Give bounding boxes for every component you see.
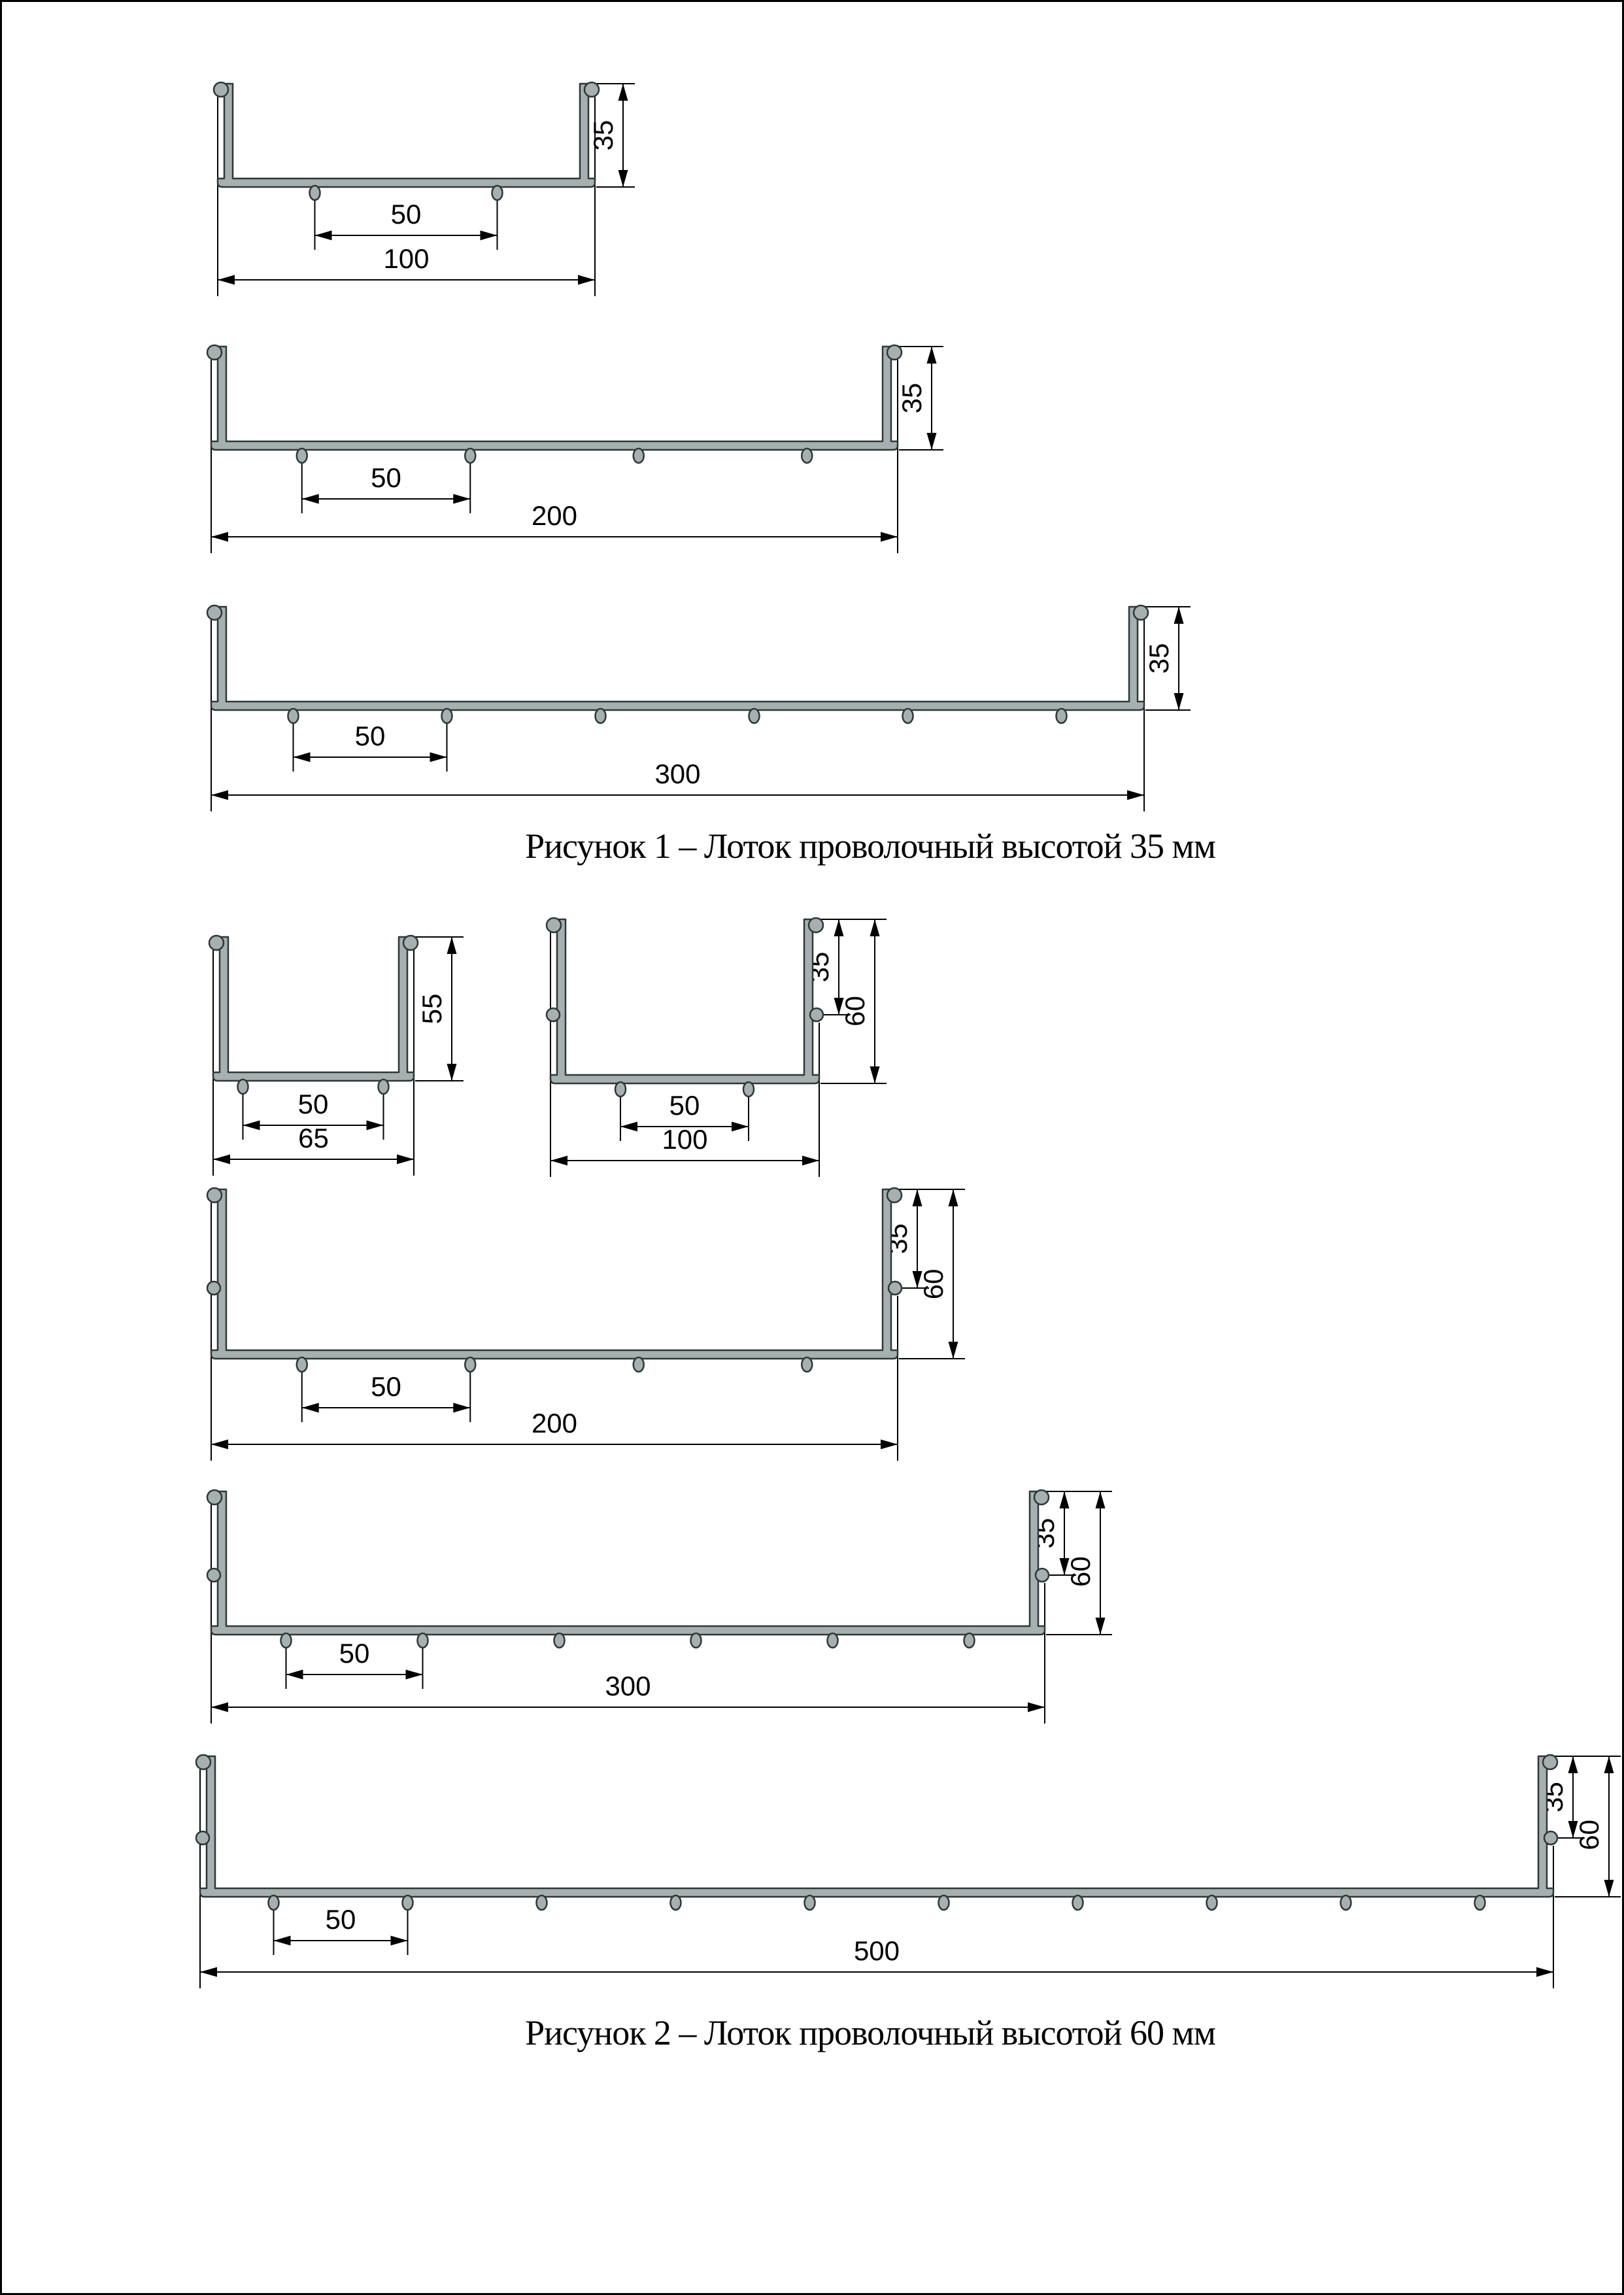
mid-wire-left — [207, 1282, 220, 1295]
tray-profile-300x35: 5030035 — [207, 605, 1191, 811]
bottom-wire — [805, 1895, 815, 1910]
mid-wire-right — [1544, 1831, 1557, 1844]
drawing-canvas: 5010035502003550300355065555010035605020… — [2, 2, 1624, 2295]
dimension-arrow — [211, 1703, 228, 1712]
dimension-arrow — [618, 170, 628, 187]
width-dim-label: 300 — [605, 1671, 651, 1701]
pitch-dim-label: 50 — [355, 721, 386, 751]
bottom-wire — [442, 709, 452, 723]
top-wire-left — [207, 345, 222, 360]
dimension-arrow — [550, 1156, 567, 1166]
dimension-arrow — [286, 1670, 303, 1680]
tray-profile-100x35: 5010035 — [214, 82, 635, 296]
dimension-arrow — [367, 1121, 384, 1130]
bottom-wire — [281, 1633, 292, 1648]
mid-wire-right — [1036, 1569, 1049, 1582]
top-wire-right — [887, 1188, 902, 1202]
width-dim-label: 65 — [298, 1123, 329, 1153]
dimension-arrow — [802, 1156, 819, 1166]
height-dim-label: 60 — [839, 996, 870, 1027]
dimension-arrow — [294, 753, 311, 762]
bottom-wire — [465, 449, 475, 463]
top-wire-right — [403, 936, 418, 950]
bottom-wire — [1341, 1895, 1351, 1910]
dimension-arrow — [1060, 1491, 1070, 1508]
dimension-arrow — [302, 1403, 319, 1413]
bottom-wire — [403, 1895, 413, 1910]
dimension-arrow — [1127, 790, 1144, 800]
dimension-arrow — [243, 1121, 260, 1130]
tray-profile-300x60: 503003560 — [207, 1490, 1112, 1724]
top-wire-right — [584, 82, 599, 97]
height-dim-label: 55 — [416, 994, 447, 1025]
bottom-wire — [288, 709, 299, 723]
dimension-arrow — [274, 1936, 291, 1946]
bottom-wire — [238, 1079, 248, 1094]
bottom-wire — [297, 449, 307, 463]
width-dim-label: 100 — [383, 243, 429, 274]
pitch-dim-label: 50 — [371, 462, 401, 493]
tray-profile-100x60: 501003560 — [547, 918, 887, 1177]
dimension-arrow — [949, 1189, 958, 1206]
dimension-arrow — [453, 1403, 470, 1413]
dimension-arrow — [732, 1122, 749, 1132]
bottom-wire — [1207, 1895, 1217, 1910]
bottom-wire — [379, 1079, 389, 1094]
bottom-wire — [802, 449, 812, 463]
height-dim-label: 60 — [1574, 1820, 1604, 1850]
pitch-dim-label: 50 — [326, 1904, 356, 1935]
width-dim-label: 300 — [654, 758, 700, 789]
bottom-wire — [1475, 1895, 1485, 1910]
bottom-wire — [615, 1082, 626, 1096]
top-wire-left — [196, 1755, 211, 1769]
tray-profile-200x35: 5020035 — [207, 345, 943, 553]
bottom-wire — [297, 1357, 307, 1372]
top-wire-right — [809, 918, 823, 932]
dimension-arrow — [881, 532, 898, 542]
top-wire-right — [887, 345, 902, 360]
width-dim-label: 200 — [532, 500, 577, 531]
bottom-wire — [749, 709, 760, 723]
dimension-arrow — [453, 494, 470, 504]
dimension-arrow — [881, 1440, 898, 1450]
dimension-arrow — [870, 919, 880, 936]
dimension-arrow — [406, 1670, 423, 1680]
dimension-arrow — [927, 433, 937, 450]
figure1-caption: Рисунок 1 – Лоток проволочный высотой 35… — [314, 826, 1426, 866]
tray-body — [211, 347, 898, 450]
bottom-wire — [634, 1357, 644, 1372]
dimension-arrow — [1604, 1880, 1614, 1897]
dimension-arrow — [618, 84, 628, 101]
height-dim-label: 35 — [896, 383, 927, 414]
dimension-arrow — [1568, 1756, 1578, 1773]
dimension-arrow — [1174, 693, 1184, 710]
bottom-wire — [1057, 709, 1067, 723]
dimension-arrow — [213, 1155, 230, 1164]
bottom-wire — [310, 186, 320, 200]
mid-wire-right — [810, 1008, 823, 1021]
dimensions: 502003560 — [211, 1189, 965, 1461]
dimension-arrow — [834, 919, 844, 936]
tray-profile-65x55: 506555 — [209, 936, 464, 1176]
bottom-wire — [418, 1633, 428, 1648]
bottom-wire — [802, 1357, 812, 1372]
height-dim-label: 35 — [1143, 643, 1174, 674]
dimensions: 501003560 — [550, 919, 887, 1177]
dimensions: 506555 — [213, 937, 464, 1176]
height-dim-label: 60 — [1065, 1556, 1096, 1587]
dimension-arrow — [1096, 1618, 1106, 1635]
dimension-arrow — [211, 790, 228, 800]
dimension-arrow — [620, 1122, 637, 1132]
dimensions: 5010035 — [218, 84, 635, 296]
bottom-wire — [492, 186, 503, 200]
top-wire-right — [1034, 1490, 1049, 1504]
tray-body — [550, 919, 819, 1083]
bottom-wire — [964, 1633, 975, 1648]
dimension-arrow — [481, 231, 498, 241]
dimension-arrow — [1536, 1967, 1553, 1977]
pitch-dim-label: 50 — [339, 1638, 370, 1669]
tray-body — [211, 1189, 898, 1359]
top-wire-left — [207, 605, 222, 620]
dimension-arrow — [913, 1189, 922, 1206]
dimension-arrow — [927, 347, 937, 364]
dimensions: 505003560 — [200, 1756, 1621, 1988]
tray-profile-200x60: 502003560 — [207, 1188, 965, 1461]
dimension-arrow — [1096, 1491, 1106, 1508]
mid-wire-left — [207, 1569, 220, 1582]
dimension-arrow — [949, 1342, 958, 1359]
width-dim-label: 500 — [854, 1935, 900, 1966]
bottom-wire — [1073, 1895, 1083, 1910]
dimensions: 503003560 — [211, 1491, 1112, 1724]
bottom-wire — [465, 1357, 475, 1372]
dimension-arrow — [1028, 1703, 1045, 1712]
bottom-wire — [269, 1895, 279, 1910]
tray-body — [213, 937, 414, 1081]
document-page: 5010035502003550300355065555010035605020… — [0, 0, 1624, 2295]
bottom-wire — [691, 1633, 702, 1648]
dimension-arrow — [1174, 607, 1184, 624]
pitch-dim-label: 50 — [298, 1089, 329, 1119]
bottom-wire — [671, 1895, 681, 1910]
pitch-dim-label: 50 — [669, 1090, 700, 1121]
dimension-arrow — [211, 532, 228, 542]
dimension-arrow — [447, 937, 457, 954]
mid-wire-left — [196, 1831, 209, 1844]
height-dim-label: 60 — [918, 1269, 949, 1300]
tray-profile-500x60: 505003560 — [196, 1755, 1621, 1988]
tray-body — [211, 1491, 1045, 1635]
top-wire-left — [207, 1490, 222, 1504]
pitch-dim-label: 50 — [371, 1371, 401, 1402]
top-wire-left — [547, 918, 561, 932]
dimension-arrow — [211, 1440, 228, 1450]
dimension-arrow — [578, 275, 595, 285]
bottom-wire — [554, 1633, 565, 1648]
tray-body — [211, 607, 1144, 710]
bottom-wire — [596, 709, 606, 723]
top-wire-right — [1134, 605, 1148, 620]
tray-body — [200, 1756, 1553, 1897]
bottom-wire — [743, 1082, 754, 1096]
mid-wire-left — [547, 1008, 560, 1021]
dimension-arrow — [430, 753, 447, 762]
figure2-caption: Рисунок 2 – Лоток проволочный высотой 60… — [314, 2013, 1426, 2053]
dimension-arrow — [200, 1967, 217, 1977]
mid-wire-right — [888, 1282, 902, 1295]
dimension-arrow — [447, 1064, 457, 1081]
dimension-arrow — [315, 231, 332, 241]
dimension-arrow — [870, 1066, 880, 1083]
dimension-arrow — [397, 1155, 414, 1164]
dimension-arrow — [302, 494, 319, 504]
bottom-wire — [828, 1633, 838, 1648]
height-dim-label: 35 — [588, 120, 618, 151]
bottom-wire — [634, 449, 644, 463]
bottom-wire — [939, 1895, 949, 1910]
dimension-arrow — [218, 275, 235, 285]
top-wire-left — [214, 82, 228, 97]
tray-body — [218, 84, 595, 187]
dimension-arrow — [391, 1936, 408, 1946]
top-wire-right — [1543, 1755, 1557, 1769]
top-wire-left — [209, 936, 224, 950]
bottom-wire — [537, 1895, 547, 1910]
width-dim-label: 100 — [662, 1124, 707, 1155]
dimension-arrow — [1604, 1756, 1614, 1773]
width-dim-label: 200 — [532, 1408, 577, 1438]
pitch-dim-label: 50 — [391, 199, 422, 229]
top-wire-left — [207, 1188, 222, 1202]
bottom-wire — [903, 709, 913, 723]
